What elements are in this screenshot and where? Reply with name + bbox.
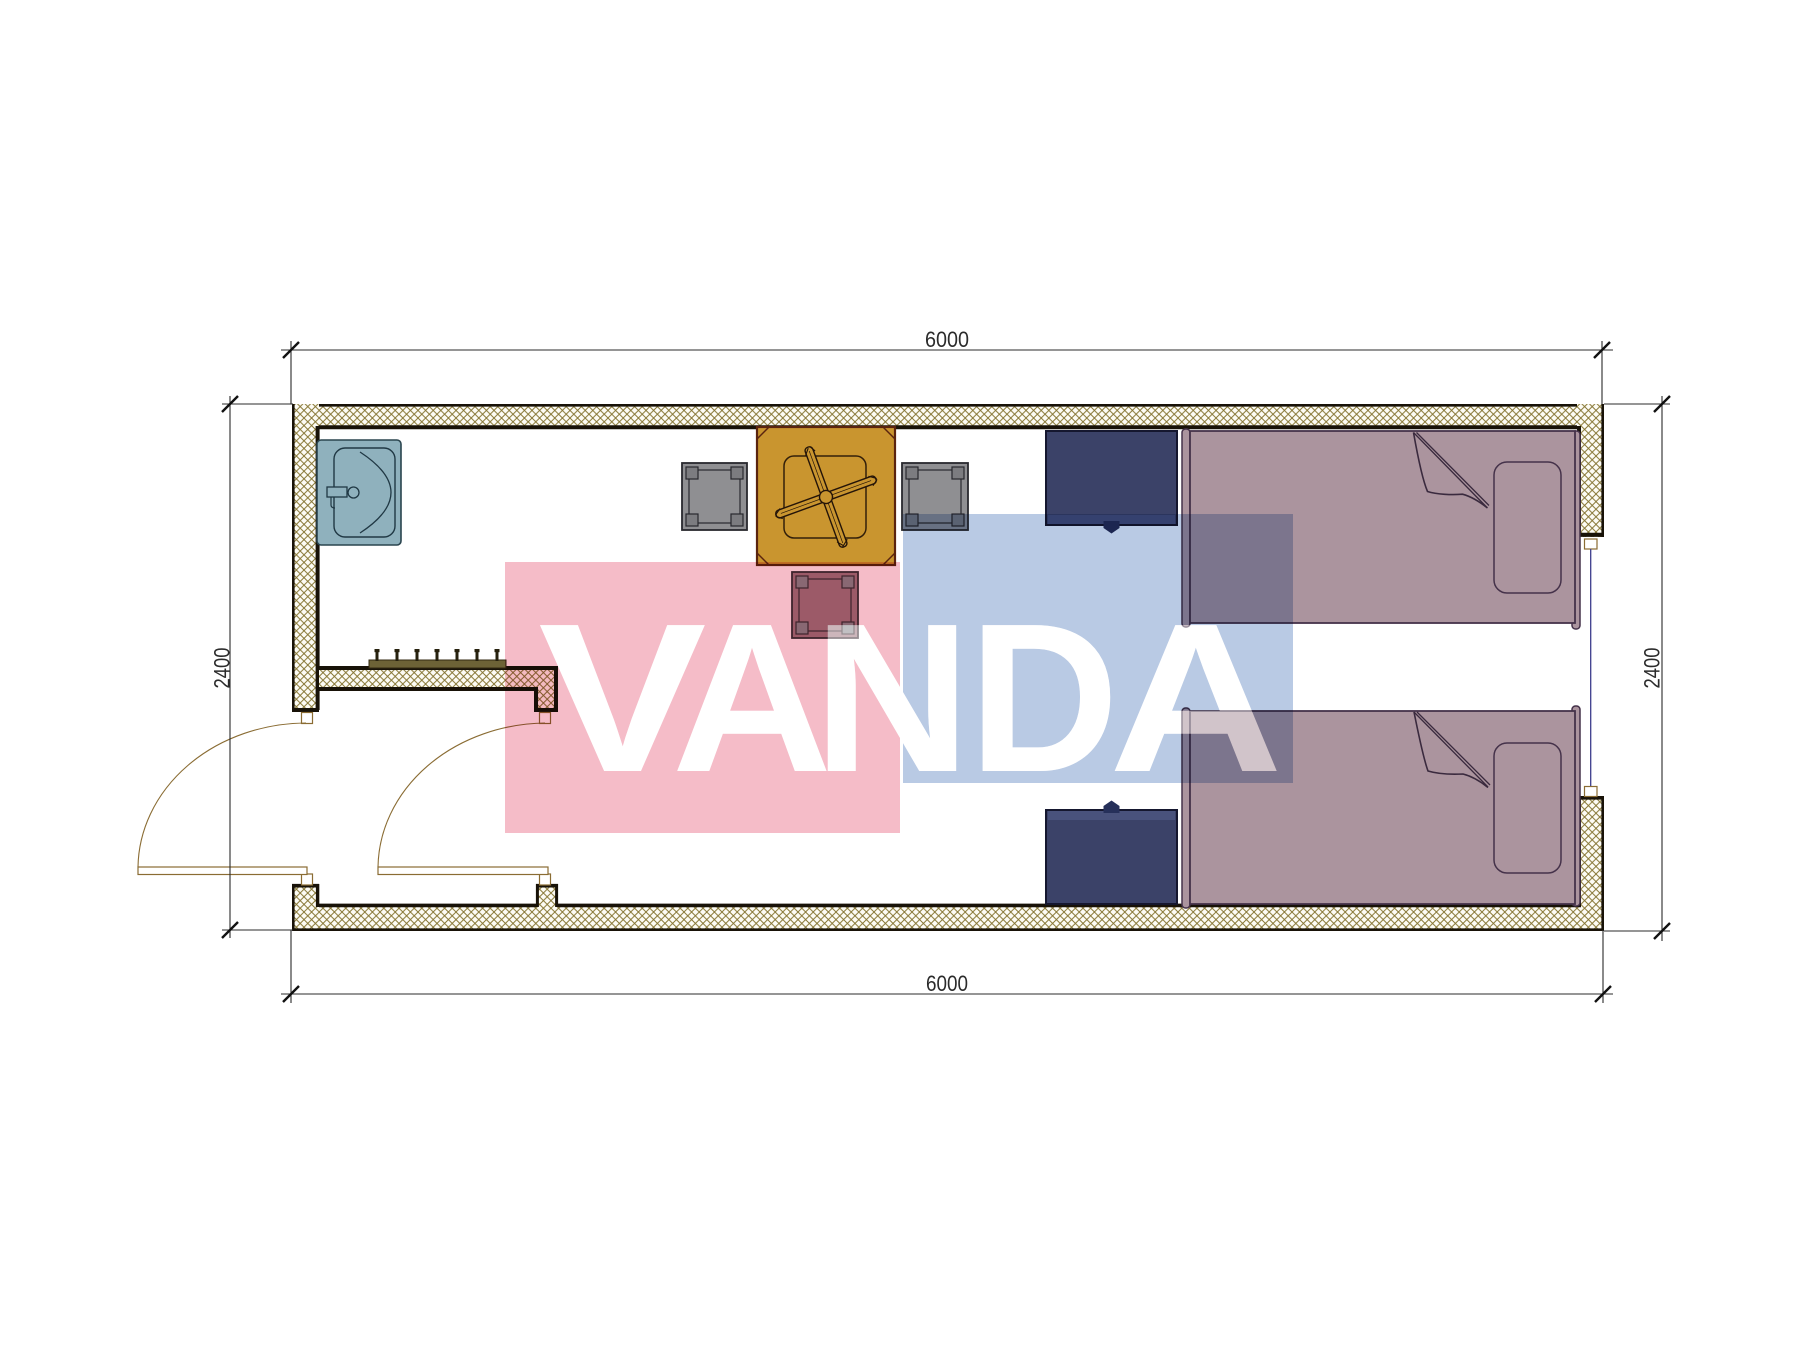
svg-text:6000: 6000 [926, 971, 968, 996]
svg-text:6000: 6000 [925, 327, 969, 352]
svg-text:A: A [1109, 580, 1283, 817]
svg-text:N: N [813, 579, 971, 816]
svg-text:2400: 2400 [1640, 648, 1665, 689]
svg-text:D: D [969, 580, 1119, 816]
svg-text:2400: 2400 [210, 648, 235, 689]
svg-text:A: A [672, 580, 833, 817]
